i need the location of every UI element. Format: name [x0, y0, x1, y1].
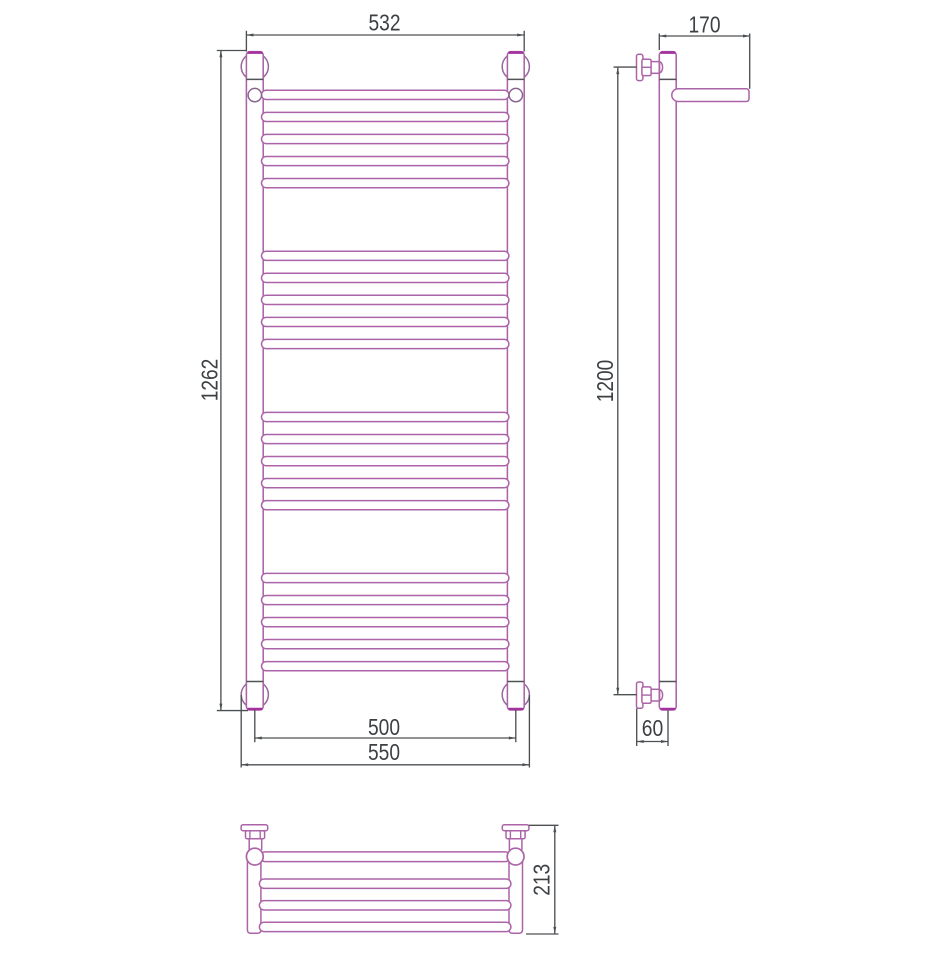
- svg-text:1262: 1262: [197, 359, 223, 402]
- svg-text:500: 500: [368, 714, 400, 740]
- svg-text:550: 550: [368, 739, 400, 765]
- svg-text:213: 213: [528, 864, 554, 896]
- svg-text:1200: 1200: [592, 360, 618, 403]
- svg-text:60: 60: [642, 715, 664, 741]
- svg-text:170: 170: [689, 12, 721, 38]
- svg-text:532: 532: [369, 10, 401, 36]
